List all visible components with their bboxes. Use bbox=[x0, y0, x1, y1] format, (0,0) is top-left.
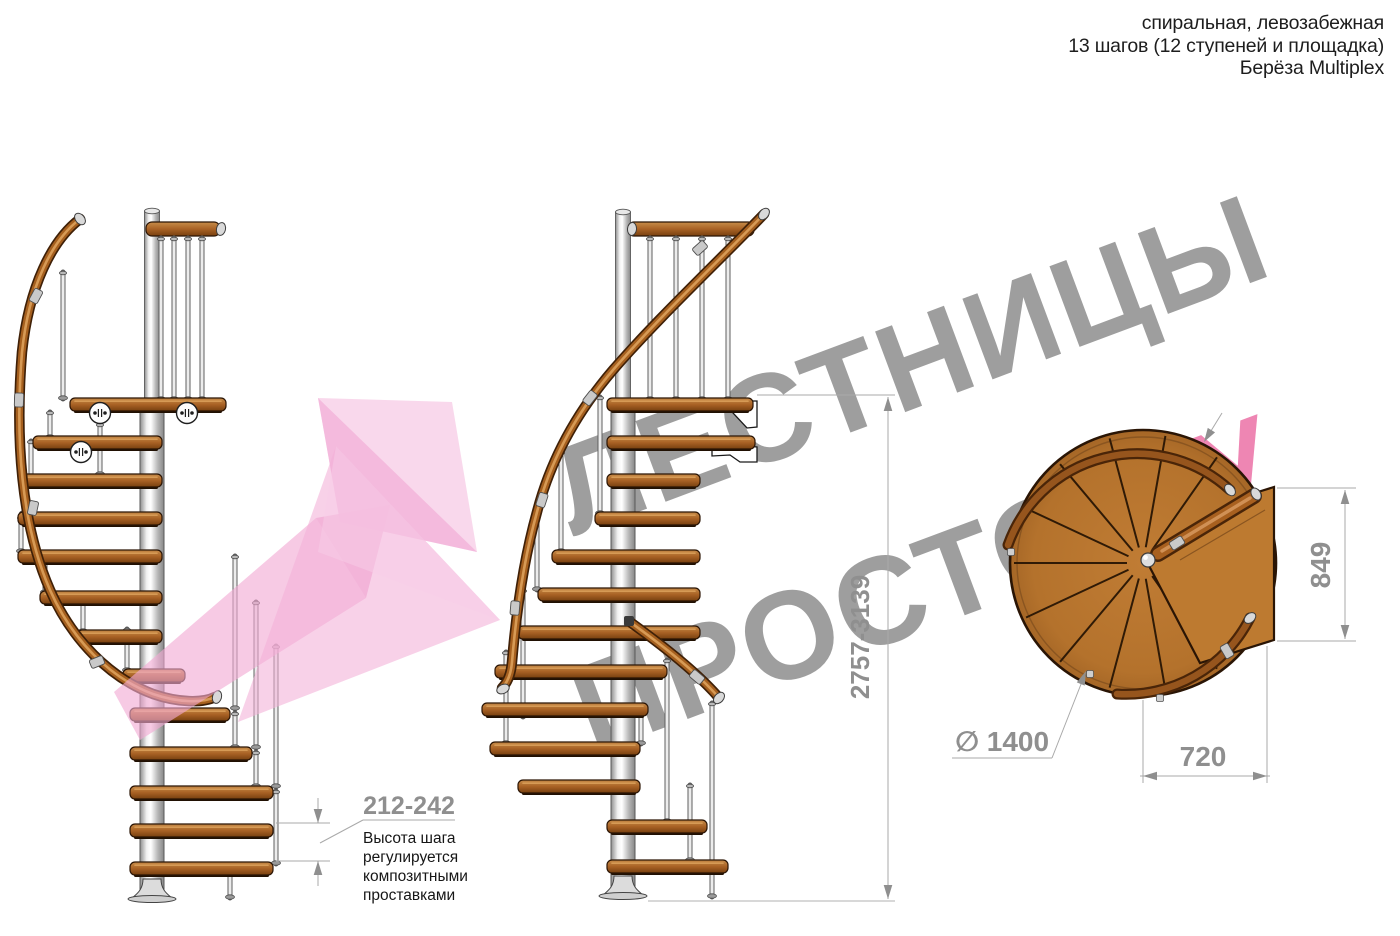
spec-steps: 13 шагов (12 ступеней и площадка) bbox=[1068, 35, 1384, 58]
spec-material: Берёза Multiplex bbox=[1068, 57, 1384, 80]
staircase-drawing-page: { "header": { "line1": "спиральная, лево… bbox=[0, 0, 1400, 936]
folded-arrow-icon bbox=[114, 398, 500, 740]
watermark-arrow bbox=[0, 0, 1400, 936]
spec-header: спиральная, левозабежная 13 шагов (12 ст… bbox=[1068, 12, 1384, 80]
spec-type: спиральная, левозабежная bbox=[1068, 12, 1384, 35]
